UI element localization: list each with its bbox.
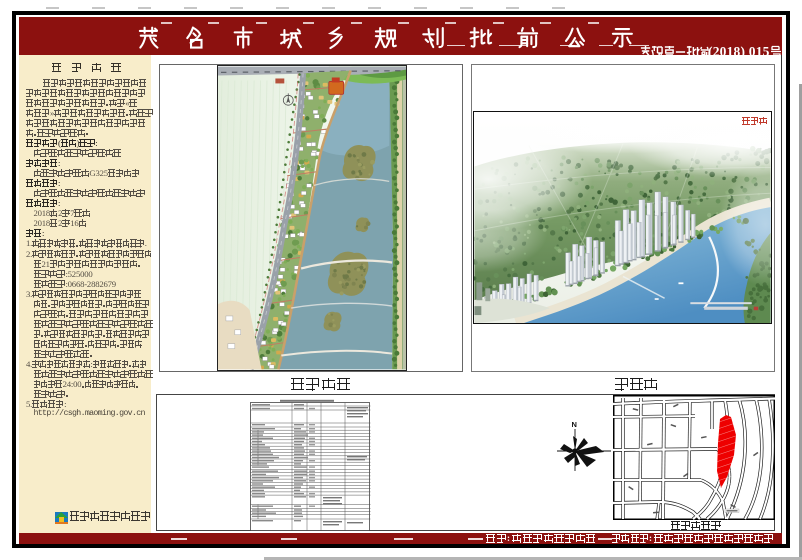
svg-text:N: N xyxy=(572,420,577,429)
